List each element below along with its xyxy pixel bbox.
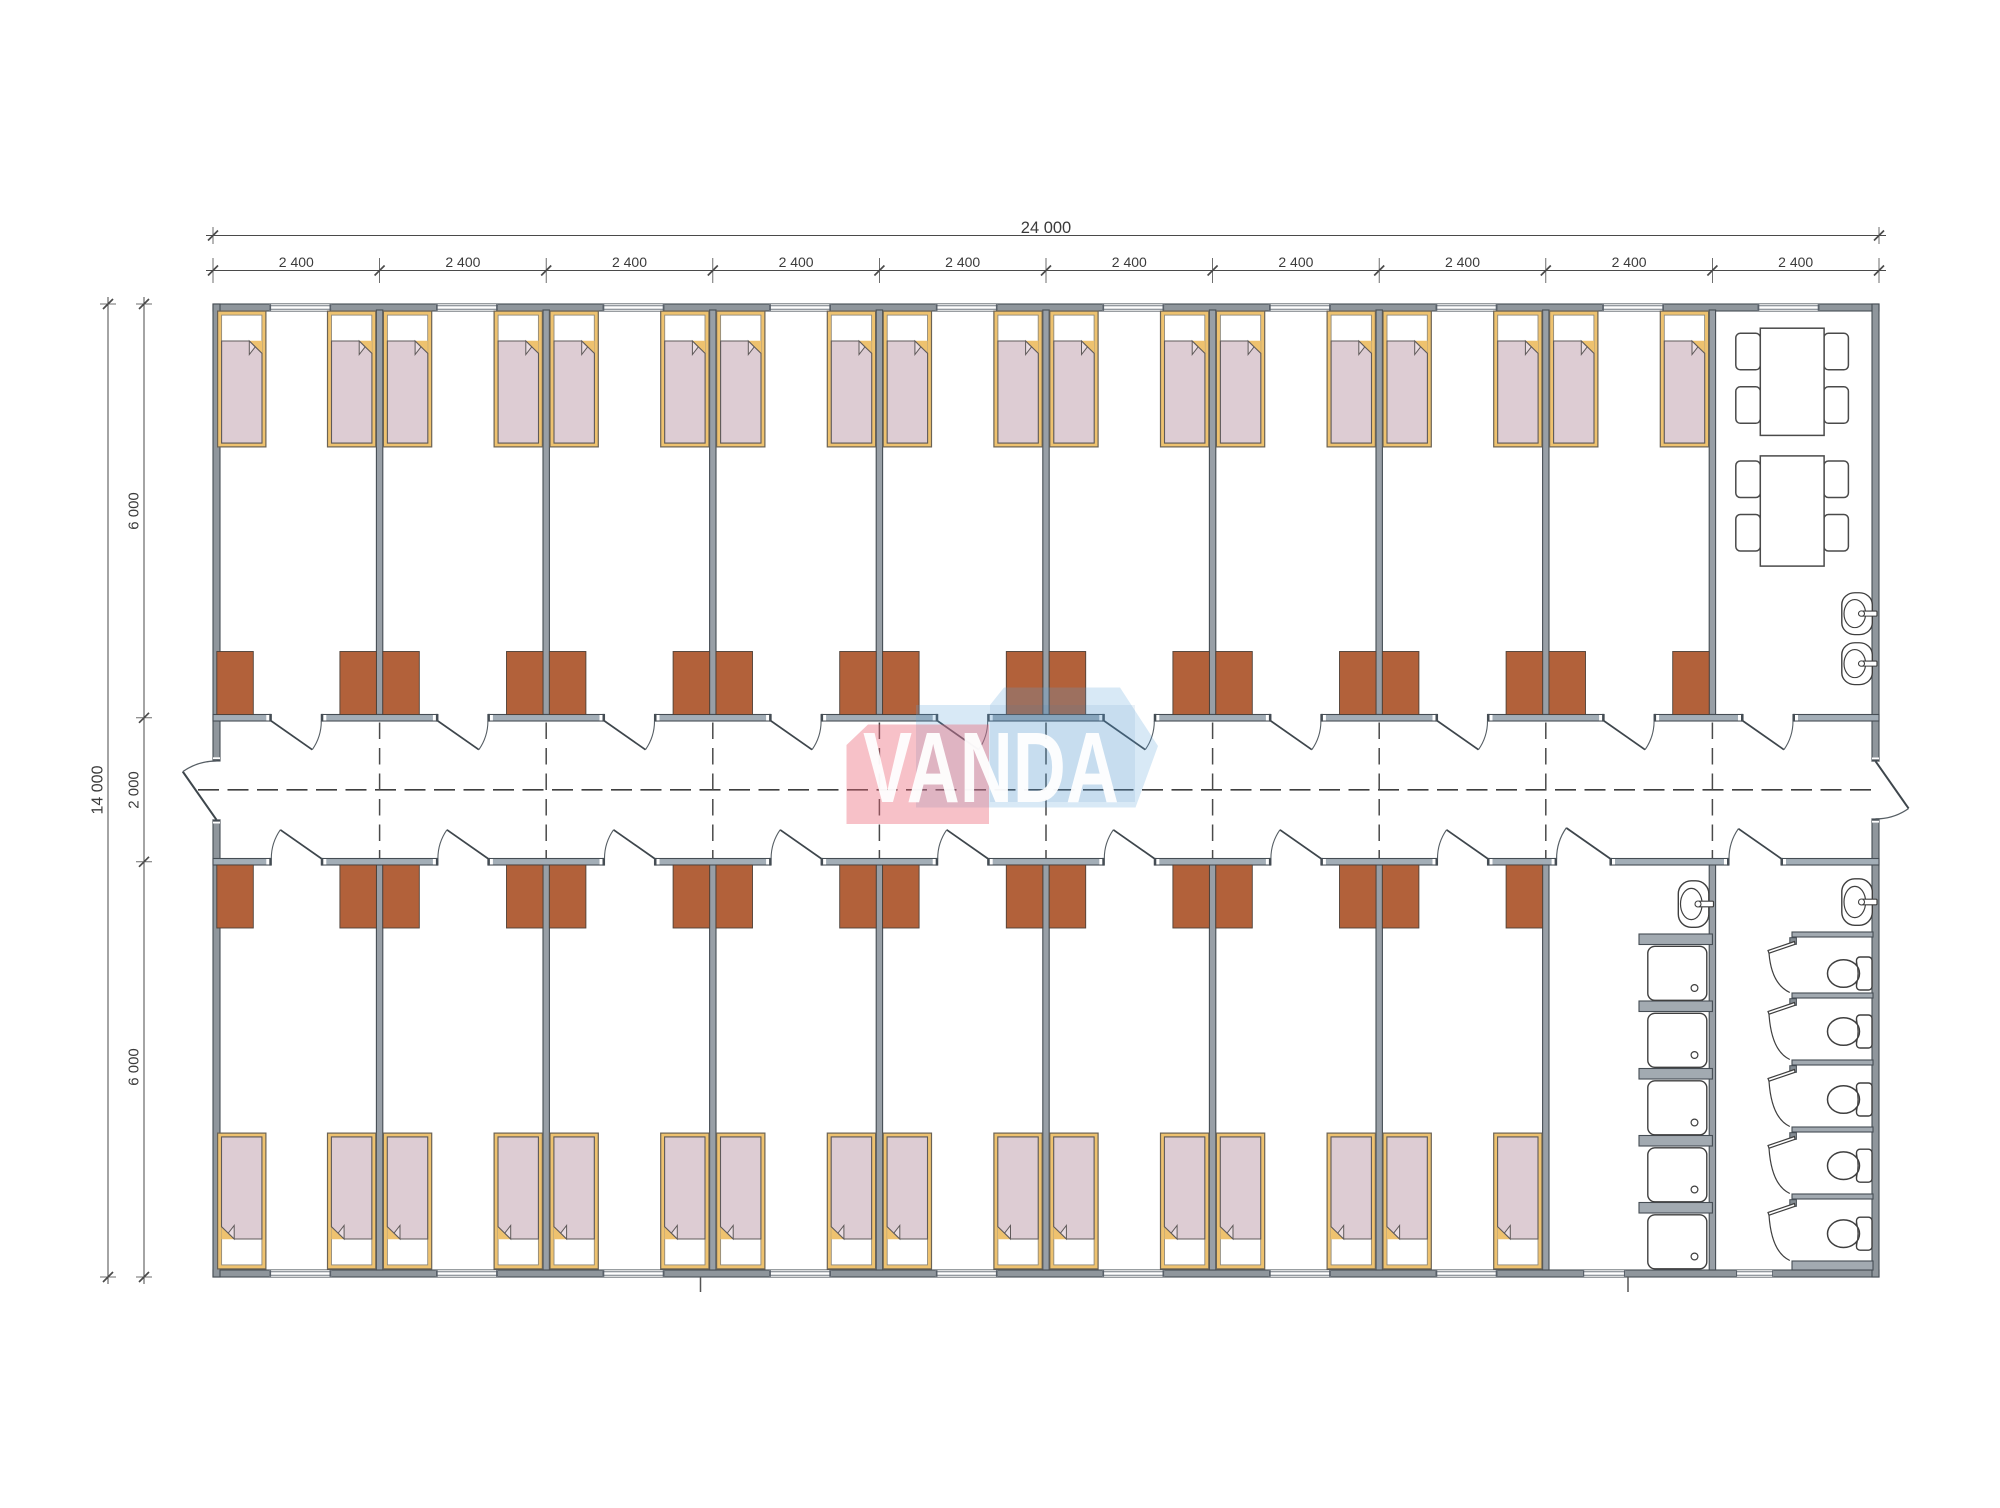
svg-text:2 400: 2 400 [1445,254,1480,270]
svg-text:2 400: 2 400 [1112,254,1147,270]
svg-text:6 000: 6 000 [126,1048,143,1086]
svg-text:2 400: 2 400 [945,254,980,270]
svg-text:2 400: 2 400 [1778,254,1813,270]
svg-text:2 400: 2 400 [779,254,814,270]
svg-text:14 000: 14 000 [90,765,107,814]
svg-text:2 400: 2 400 [279,254,314,270]
svg-text:2 400: 2 400 [1612,254,1647,270]
svg-text:2 000: 2 000 [126,771,143,809]
svg-text:6 000: 6 000 [126,492,143,530]
svg-text:2 400: 2 400 [1278,254,1313,270]
svg-text:2 400: 2 400 [612,254,647,270]
svg-text:2 400: 2 400 [445,254,480,270]
svg-text:VANDA: VANDA [863,712,1119,824]
svg-text:24 000: 24 000 [1021,219,1071,237]
